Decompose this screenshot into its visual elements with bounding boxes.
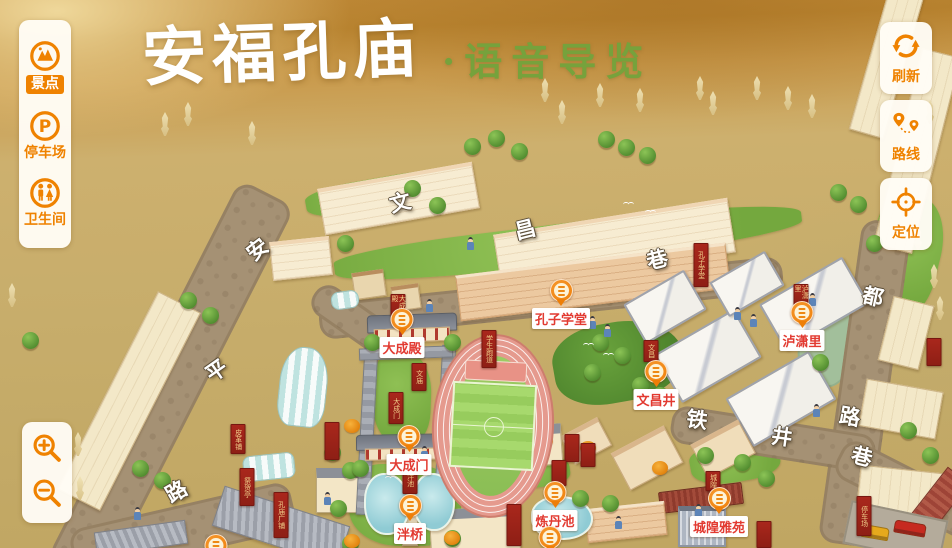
poplar-tree: [696, 76, 705, 100]
tree: [429, 197, 446, 214]
refresh-icon: [890, 30, 922, 66]
poi-label[interactable]: 泮桥: [394, 523, 426, 544]
tree: [352, 460, 369, 477]
tree: [488, 130, 505, 147]
map-banner: 皮革铺: [231, 424, 246, 454]
zoom-in-button[interactable]: [29, 432, 65, 468]
tree: [602, 495, 619, 512]
poplar-tree: [936, 296, 945, 320]
orange-tree: [444, 531, 460, 545]
person-figure: [466, 237, 475, 250]
poi-dachengmen[interactable]: 大成门: [386, 425, 431, 475]
poi-marker-icon[interactable]: [707, 487, 730, 510]
tree: [618, 139, 635, 156]
poi-marker-icon[interactable]: [543, 481, 566, 504]
restroom-icon: [28, 176, 62, 210]
anfu-confucius-temple-map-app: 大成殿孔子学堂泸潇里文昌城隍文庙大成门学生跑道泮池皮革铺祭贺亭孔庙广铺停车场安平…: [0, 0, 952, 548]
tool-parking[interactable]: P 停车场: [24, 109, 66, 161]
person-figure: [425, 299, 434, 312]
poi-panqiao[interactable]: 泮桥: [394, 494, 426, 544]
poi-dachengdian[interactable]: 大成殿: [379, 308, 424, 358]
route-label: 路线: [892, 147, 920, 163]
poi-marker-icon[interactable]: [390, 308, 413, 331]
poi-luxiaoli[interactable]: 泸潇里: [779, 301, 824, 351]
building-school: [584, 501, 667, 543]
map-banner: [507, 504, 522, 546]
poplar-tree: [596, 83, 605, 107]
map-canvas[interactable]: 大成殿孔子学堂泸潇里文昌城隍文庙大成门学生跑道泮池皮革铺祭贺亭孔庙广铺停车场安平…: [0, 0, 952, 548]
zoom-controls: [22, 422, 72, 523]
poplar-tree: [541, 78, 550, 102]
bird-icon: [385, 476, 396, 481]
left-toolbar: 景点 P 停车场 卫生间: [19, 20, 71, 248]
map-banner: 学生跑道: [482, 330, 497, 368]
poplar-tree: [808, 94, 817, 118]
tree: [464, 138, 481, 155]
poplar-tree: [636, 88, 645, 112]
map-banner: [757, 521, 772, 548]
tree: [511, 143, 528, 160]
poplar-tree: [248, 121, 257, 145]
poi-unlabeled-south[interactable]: [205, 534, 228, 548]
tree: [922, 447, 939, 464]
tree: [639, 147, 656, 164]
tree: [337, 235, 354, 252]
locate-icon: [890, 186, 922, 222]
building-shop: [269, 236, 333, 281]
poi-zhuangyuanqiao[interactable]: 状元桥: [527, 526, 572, 548]
parking-icon: P: [28, 109, 62, 143]
tree: [812, 354, 829, 371]
magnifier-minus-icon: [30, 476, 64, 514]
person-figure: [733, 307, 742, 320]
map-banner: [927, 338, 942, 366]
tree: [330, 500, 347, 517]
poi-marker-icon[interactable]: [549, 279, 572, 302]
map-banner: [581, 443, 596, 467]
market-stall: [275, 345, 331, 430]
tree: [850, 196, 867, 213]
football-pitch: [449, 381, 537, 471]
tree: [830, 184, 847, 201]
refresh-button[interactable]: 刷新: [880, 22, 932, 94]
poi-label[interactable]: 城隍雅苑: [690, 516, 748, 537]
svg-text:P: P: [39, 117, 51, 137]
poi-marker-icon[interactable]: [644, 360, 667, 383]
orange-tree: [344, 419, 360, 433]
tree: [584, 364, 601, 381]
tree: [697, 447, 714, 464]
map-banner: 大成门: [389, 392, 404, 424]
tool-restroom[interactable]: 卫生间: [24, 176, 66, 228]
poi-chenghuang-yayuan[interactable]: 城隍雅苑: [690, 487, 748, 537]
bird-icon: [583, 343, 594, 348]
map-banner: 文庙: [412, 363, 427, 391]
poplar-tree: [709, 91, 718, 115]
poplar-tree: [558, 100, 567, 124]
poi-label[interactable]: 大成殿: [379, 337, 424, 358]
map-banner: 祭贺亭: [240, 468, 255, 506]
poi-marker-icon[interactable]: [538, 526, 561, 548]
map-banner: 孔子学堂: [694, 243, 709, 287]
poplar-tree: [753, 76, 762, 100]
tree: [734, 454, 751, 471]
tool-parking-label: 停车场: [24, 145, 66, 161]
street-name-char: 井: [770, 420, 795, 453]
route-button[interactable]: 路线: [880, 100, 932, 172]
poi-label[interactable]: 大成门: [386, 454, 431, 475]
bird-icon: [645, 210, 656, 215]
person-figure: [133, 507, 142, 520]
locate-label: 定位: [892, 225, 920, 241]
poi-marker-icon[interactable]: [397, 425, 420, 448]
person-figure: [614, 516, 623, 529]
person-figure: [603, 324, 612, 337]
bird-icon: [603, 353, 614, 358]
map-banner: [325, 422, 340, 460]
poi-wenchangjing[interactable]: 文昌井: [633, 360, 678, 410]
tool-scenic-spots-label: 景点: [26, 75, 64, 93]
poi-label[interactable]: 文昌井: [633, 389, 678, 410]
tree: [22, 332, 39, 349]
poi-label[interactable]: 孔子学堂: [532, 308, 590, 329]
tree: [364, 334, 381, 351]
tree: [900, 422, 917, 439]
street-name-char: 铁: [685, 403, 710, 436]
poi-marker-icon[interactable]: [205, 534, 228, 548]
person-figure: [749, 314, 758, 327]
person-figure: [323, 492, 332, 505]
poi-marker-icon[interactable]: [790, 301, 813, 324]
orange-tree: [652, 461, 668, 475]
bird-icon: [623, 202, 634, 207]
locate-button[interactable]: 定位: [880, 178, 932, 250]
poplar-tree: [184, 102, 193, 126]
tree: [758, 470, 775, 487]
route-icon: [890, 108, 922, 144]
person-figure: [812, 404, 821, 417]
tree: [132, 460, 149, 477]
scenic-spot-icon: [28, 39, 62, 73]
magnifier-plus-icon: [30, 431, 64, 469]
poplar-tree: [161, 112, 170, 136]
zoom-out-button[interactable]: [29, 477, 65, 513]
tree: [202, 307, 219, 324]
tree: [614, 347, 631, 364]
map-banner: 停车场: [857, 496, 872, 536]
poi-liandanchi[interactable]: 炼丹池: [532, 481, 577, 531]
tree: [598, 131, 615, 148]
poi-marker-icon[interactable]: [398, 494, 421, 517]
map-banner: 孔庙广铺: [274, 492, 289, 538]
poplar-tree: [784, 86, 793, 110]
tool-restroom-label: 卫生间: [24, 212, 66, 228]
tool-scenic-spots[interactable]: 景点: [26, 39, 64, 93]
refresh-label: 刷新: [892, 69, 920, 85]
poi-label[interactable]: 泸潇里: [779, 330, 824, 351]
poi-kongzi-xuetang[interactable]: 孔子学堂: [532, 279, 590, 329]
map-banner: [565, 434, 580, 462]
map-banner: 文昌: [644, 340, 659, 362]
poplar-tree: [8, 283, 17, 307]
orange-tree: [344, 534, 360, 548]
tree: [180, 292, 197, 309]
